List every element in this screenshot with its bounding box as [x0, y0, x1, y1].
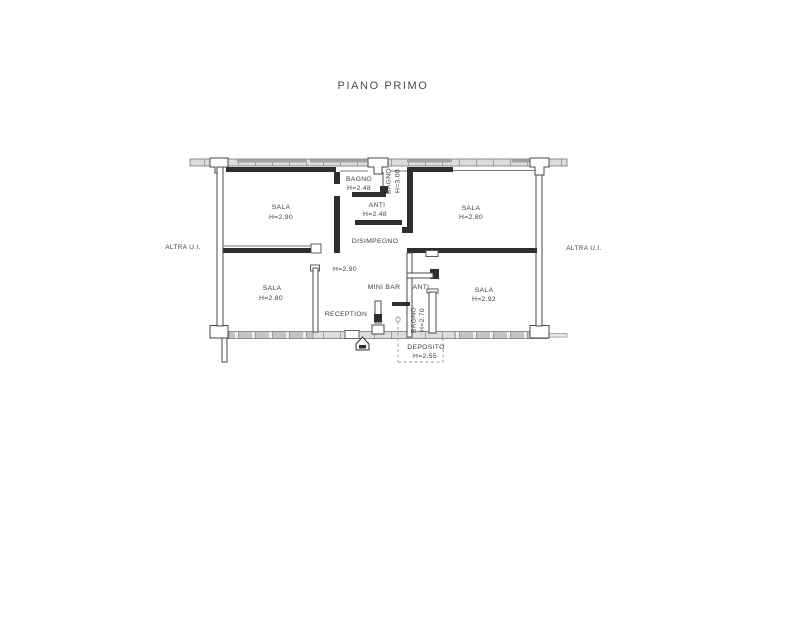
room-label-sala-ne: SALA: [462, 205, 481, 212]
room-label-sala-nw: SALA: [272, 204, 291, 211]
page-title: PIANO PRIMO: [338, 80, 429, 92]
room-label-bagno-north-2: BAGNO: [386, 168, 393, 194]
room-height-sala-ne: H=2.80: [459, 214, 483, 221]
room-height-bagno-north-2: H=3.00: [395, 169, 402, 193]
door-pivot-symbol: [396, 317, 400, 321]
entrance-arrow-icon: [356, 337, 369, 350]
room-height-sala-se: H=2.92: [472, 296, 496, 303]
room-label-sala-se: SALA: [475, 287, 494, 294]
room-height-disimpegno: H=2.90: [333, 266, 357, 273]
room-label-bagno-north: BAGNO: [346, 176, 372, 183]
room-label-deposito: DEPOSITO: [407, 344, 444, 351]
room-label-bagno-south: BAGNO: [411, 307, 418, 333]
room-label-sala-sw: SALA: [263, 285, 282, 292]
room-label-disimpegno: DISIMPEGNO: [352, 238, 398, 245]
room-label-anti-north: ANTI: [369, 202, 386, 209]
room-height-bagno-north: H=2.48: [347, 185, 371, 192]
room-label-anti-south: ANTI: [413, 284, 430, 291]
room-height-deposito: H=2.55: [413, 353, 437, 360]
room-height-anti-north: H=2.48: [363, 211, 387, 218]
entrance-door-threshold: [345, 331, 359, 339]
room-label-reception: RECEPTION: [325, 311, 367, 318]
adjacent-unit-label-right: ALTRA U.I.: [566, 245, 602, 252]
adjacent-unit-label-left: ALTRA U.I.: [165, 244, 201, 251]
room-label-mini-bar: MINI BAR: [368, 284, 401, 291]
floor-plan-page: PIANO PRIMO ALTRA U.I. ALTRA U.I. SALA H…: [0, 0, 800, 623]
room-height-sala-nw: H=2.90: [269, 214, 293, 221]
mini-bar-counter: [372, 301, 410, 334]
room-height-bagno-south: H=2.70: [419, 308, 426, 332]
floor-plan-drawing: PIANO PRIMO ALTRA U.I. ALTRA U.I. SALA H…: [0, 0, 800, 623]
room-height-sala-sw: H=2.80: [259, 295, 283, 302]
